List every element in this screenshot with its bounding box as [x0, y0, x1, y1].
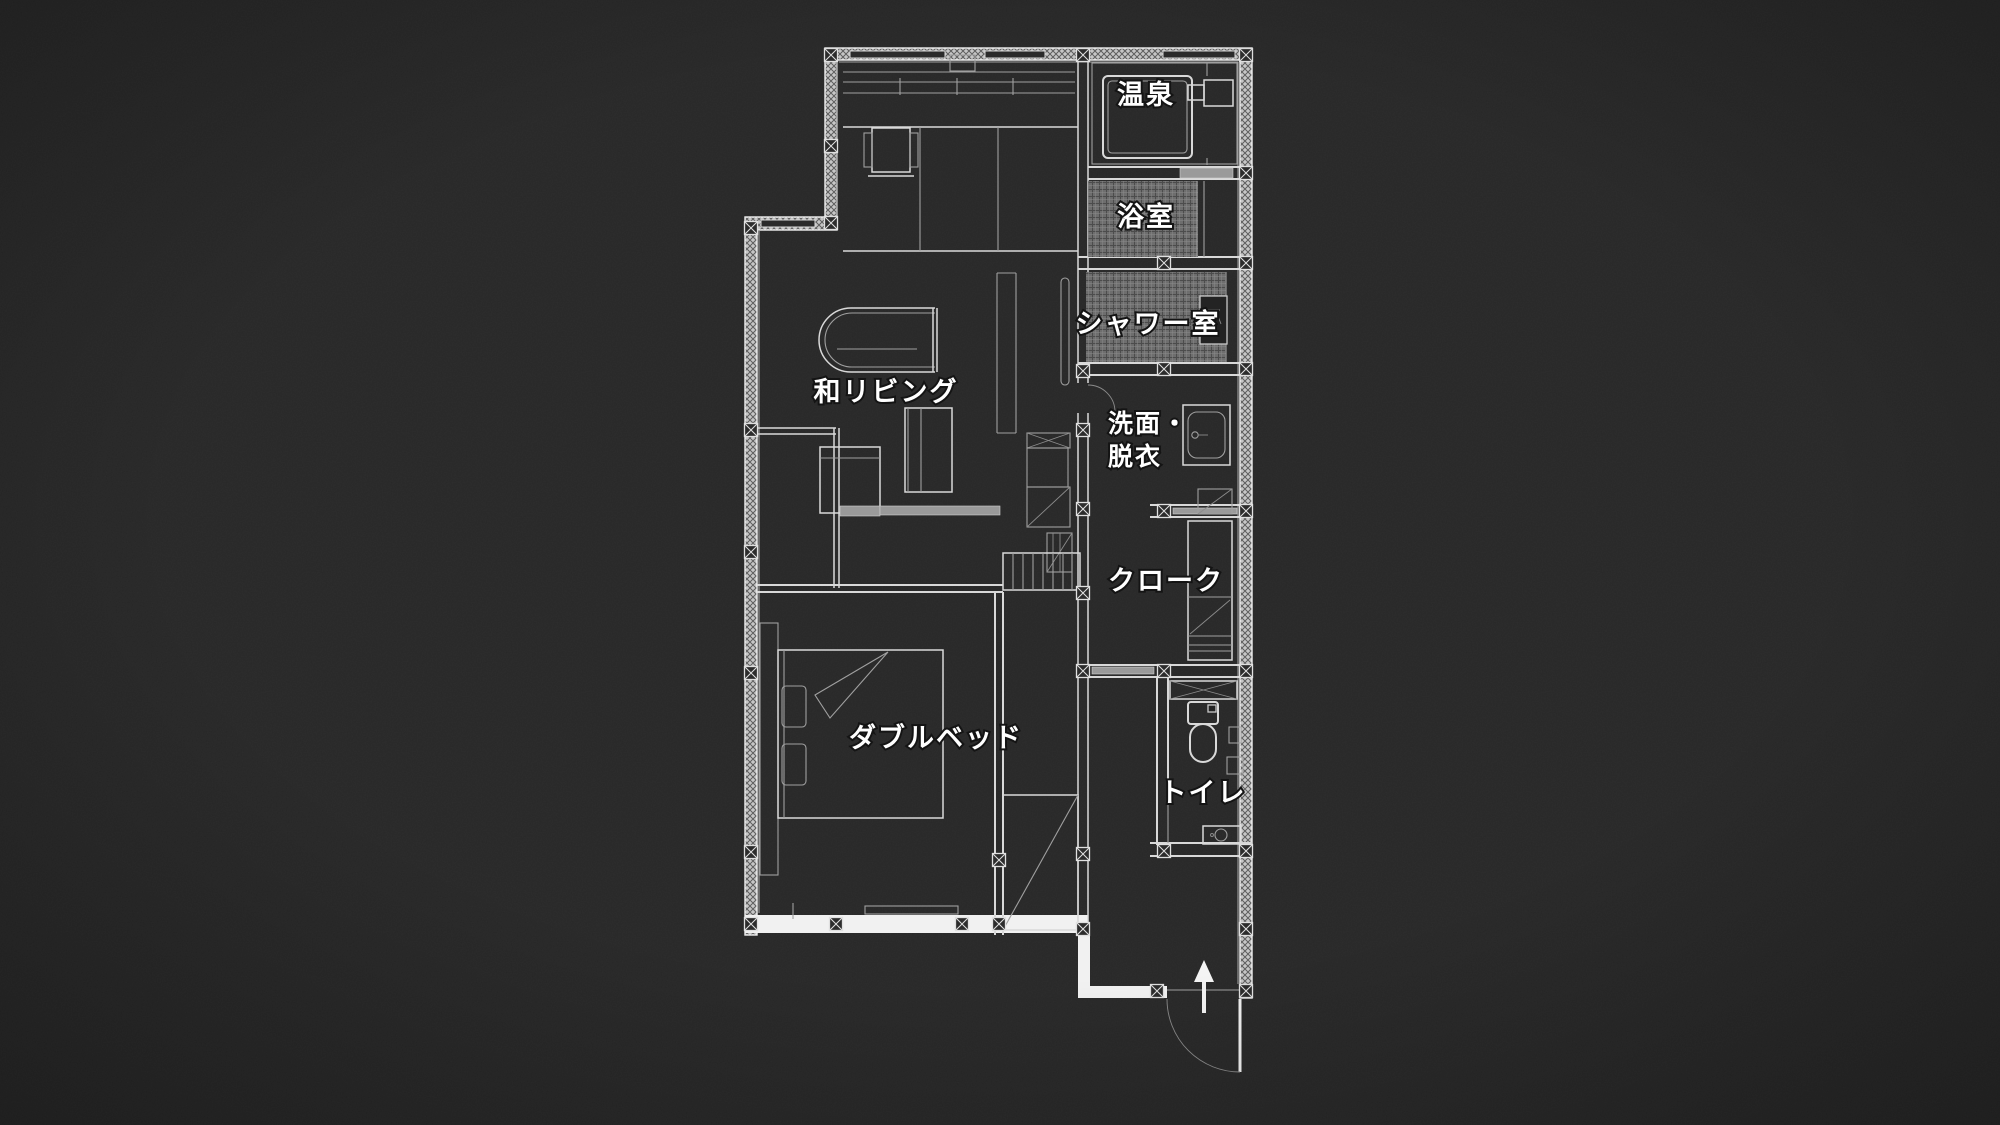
floor-plan-canvas: 温泉 浴室 シャワー室 洗面・ 脱衣	[0, 0, 2000, 1125]
floor-plan: 温泉 浴室 シャワー室 洗面・ 脱衣	[0, 0, 2000, 1125]
vignette-overlay	[0, 0, 2000, 1125]
